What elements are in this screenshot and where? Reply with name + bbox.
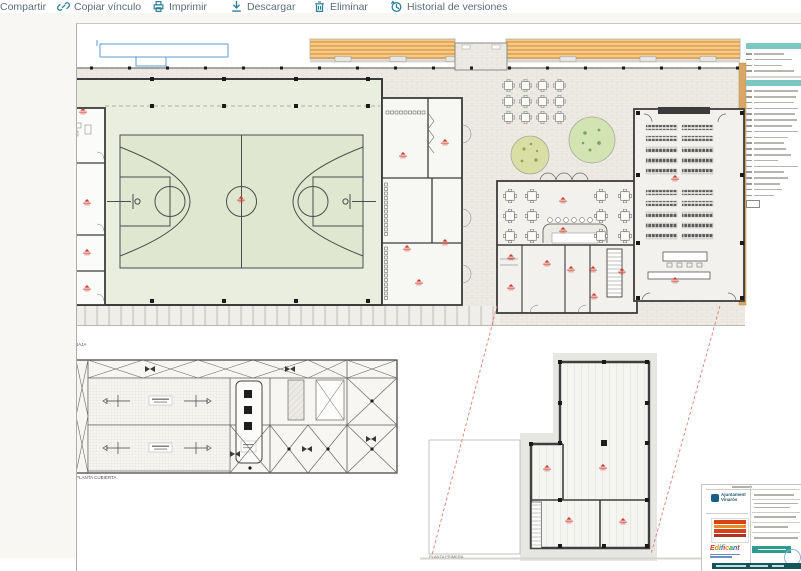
title-block-footer (712, 563, 801, 569)
version-history-button[interactable]: Historial de versiones (390, 0, 507, 13)
download-label: Descargar (247, 1, 295, 13)
legend-scale-box (746, 200, 760, 208)
drawing-legend (746, 42, 801, 208)
copy-link-button[interactable]: Copiar vínculo (57, 0, 141, 13)
generalitat-logo (711, 518, 749, 543)
app-window: { "toolbar": { "items": [ {"id": "share"… (0, 0, 801, 558)
printer-icon (152, 0, 165, 13)
download-button[interactable]: Descargar (230, 0, 295, 13)
share-button[interactable]: Compartir (0, 0, 46, 13)
drawing-sheet: PLANTA BAJA PLANTA CUBIERTA PLANTA PRIME… (76, 23, 801, 571)
tree-2 (569, 117, 615, 163)
print-label: Imprimir (169, 1, 207, 13)
trash-icon (313, 0, 326, 13)
floor-plan-label: PLANTA BAJA (76, 342, 86, 347)
tree-1 (511, 136, 549, 174)
copy-link-label: Copiar vínculo (74, 1, 141, 13)
legend-header-2 (746, 80, 801, 86)
roof-plan-label: PLANTA CUBIERTA (76, 475, 117, 480)
pergola-canopies (310, 39, 740, 63)
roof-plan (76, 360, 397, 473)
history-icon (390, 0, 403, 13)
delete-label: Eliminar (330, 1, 368, 13)
link-icon (57, 0, 70, 13)
delete-button[interactable]: Eliminar (313, 0, 368, 13)
blue-boundary-line (97, 40, 228, 66)
edificant-logo: Edificant (710, 545, 740, 552)
print-button[interactable]: Imprimir (152, 0, 207, 13)
architectural-plan: PLANTA BAJA PLANTA CUBIERTA PLANTA PRIME… (76, 23, 801, 571)
download-icon (230, 0, 243, 13)
auditorium (634, 107, 744, 301)
changing-rooms (382, 98, 471, 305)
document-viewer[interactable]: PLANTA BAJA PLANTA CUBIERTA PLANTA PRIME… (0, 13, 801, 558)
detail-plan-label: PLANTA PRIMERA (429, 554, 464, 559)
sports-hall (76, 79, 382, 305)
version-history-label: Historial de versiones (407, 1, 507, 13)
share-label: Compartir (0, 1, 46, 13)
legend-header-1 (746, 43, 801, 49)
vinaros-logo: AjuntamentVinaròs (711, 493, 746, 502)
file-toolbar: Compartir Copiar vínculo Imprimir Descar… (0, 0, 801, 13)
podium-desk (663, 252, 707, 261)
cafeteria (497, 173, 637, 313)
callout-extent-box (429, 440, 520, 554)
detail-plan (429, 306, 720, 561)
vinaros-crest-icon (711, 494, 719, 502)
